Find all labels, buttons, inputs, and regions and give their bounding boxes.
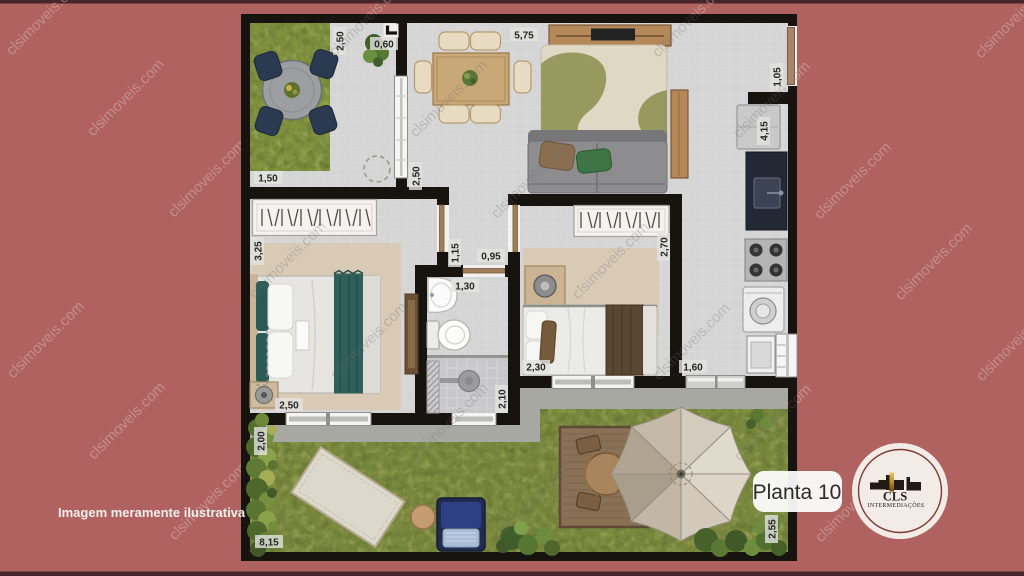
- svg-text:1,60: 1,60: [683, 363, 703, 374]
- svg-text:0,60: 0,60: [374, 40, 394, 51]
- svg-text:1,50: 1,50: [258, 174, 278, 185]
- svg-text:2,00: 2,00: [257, 431, 268, 451]
- svg-text:2,30: 2,30: [526, 363, 546, 374]
- svg-text:8,15: 8,15: [259, 538, 279, 549]
- svg-text:2,55: 2,55: [768, 519, 779, 539]
- svg-text:2,50: 2,50: [412, 166, 423, 186]
- svg-text:4,15: 4,15: [760, 121, 771, 141]
- svg-text:5,75: 5,75: [514, 31, 534, 42]
- svg-text:2,50: 2,50: [279, 401, 299, 412]
- svg-text:2,70: 2,70: [660, 237, 671, 257]
- svg-text:0,95: 0,95: [481, 252, 501, 263]
- svg-text:INTERMEDIAÇÕES: INTERMEDIAÇÕES: [868, 501, 925, 509]
- svg-text:3,25: 3,25: [254, 241, 265, 261]
- svg-text:Planta 10: Planta 10: [753, 481, 842, 504]
- svg-text:Imagem meramente ilustrativa: Imagem meramente ilustrativa: [58, 505, 246, 520]
- svg-text:1,30: 1,30: [455, 282, 475, 293]
- svg-text:CLS: CLS: [883, 490, 907, 504]
- svg-text:1,15: 1,15: [451, 243, 462, 263]
- svg-text:2,10: 2,10: [498, 389, 509, 409]
